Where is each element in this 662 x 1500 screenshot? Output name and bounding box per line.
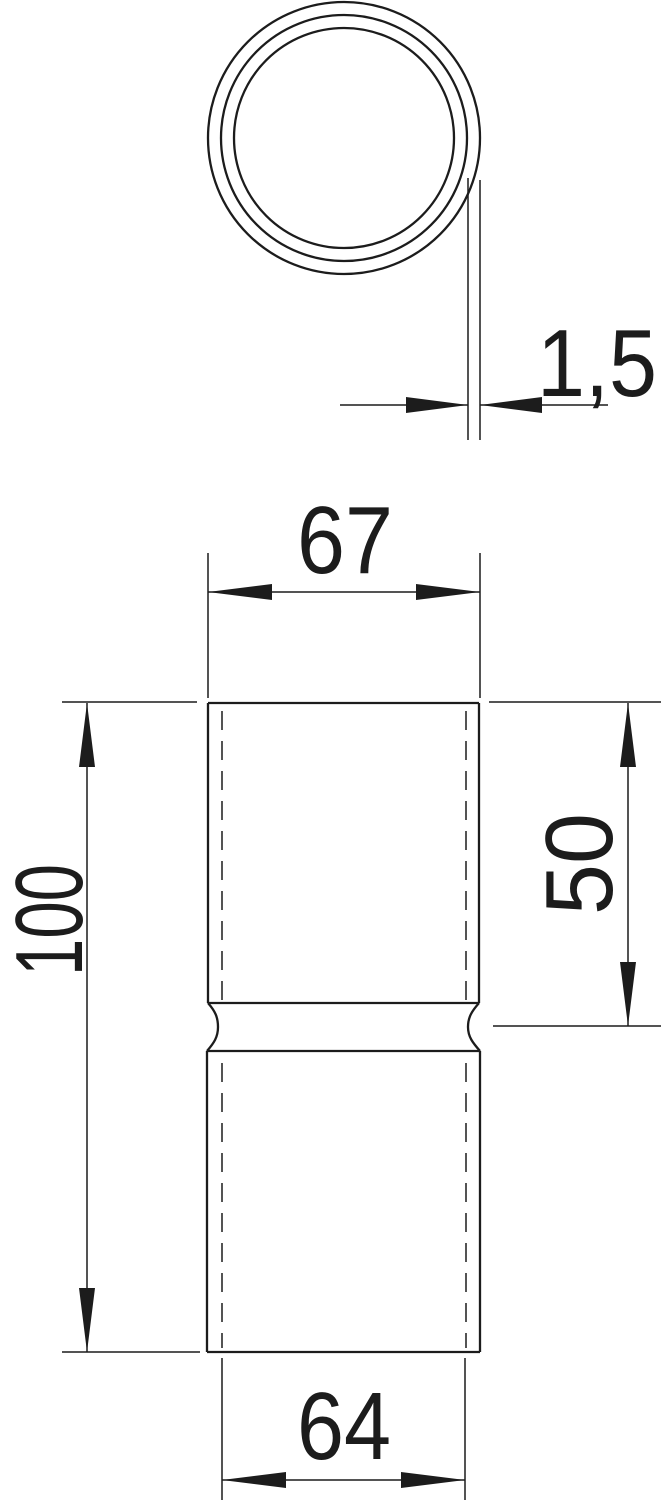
inner-circle [234,28,454,248]
arrow-up-icon [79,703,95,767]
outer-width-label: 67 [297,487,393,594]
inner-width-label: 64 [297,1373,391,1480]
dimension-upper-section-height: 50 [489,702,661,1026]
dimension-outer-width: 67 [208,487,480,698]
waist-curve-right [468,1003,480,1051]
front-view-sleeve [207,703,480,1352]
upper-section-height-label: 50 [526,813,633,915]
top-view-ring [208,2,480,274]
wall-thickness-label: 1,5 [537,310,657,417]
arrow-left-icon [480,397,542,413]
technical-drawing-canvas: 1,5 [0,0,662,1500]
arrow-down-icon [79,1288,95,1352]
arrow-right-icon [406,397,468,413]
technical-drawing-page: 1,5 [0,0,662,1500]
arrow-left-icon [222,1472,286,1488]
outer-circle [208,2,480,274]
dimension-inner-width: 64 [222,1358,465,1500]
arrow-down-icon [620,962,636,1026]
dimension-wall-thickness: 1,5 [340,178,657,440]
arrow-right-icon [416,584,480,600]
middle-circle [221,15,467,261]
arrow-right-icon [401,1472,465,1488]
waist-curve-left [207,1003,218,1051]
dimension-overall-height: 100 [0,702,200,1352]
overall-height-label: 100 [0,864,103,976]
arrow-up-icon [620,703,636,767]
arrow-left-icon [208,584,272,600]
